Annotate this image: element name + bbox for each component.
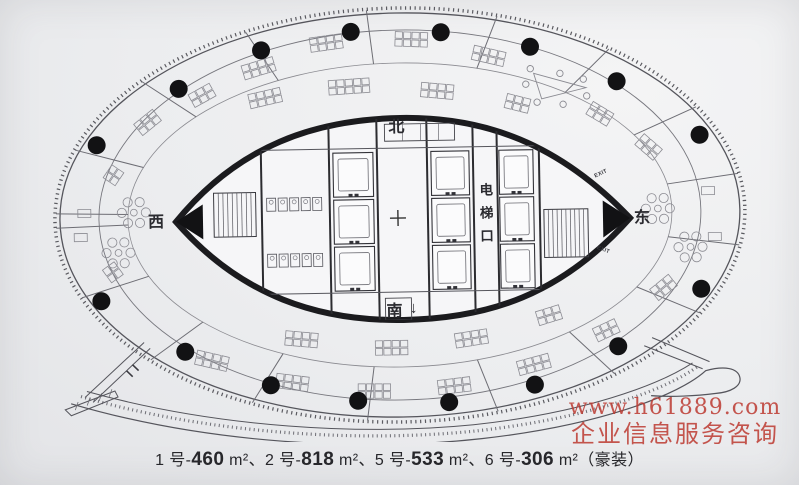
elevator-entrance-label: 电梯口: [479, 181, 494, 243]
column-dot: [440, 393, 458, 411]
caption-text: m²、5 号-: [334, 452, 411, 469]
column-dot: [252, 41, 270, 59]
column-dot: [170, 80, 188, 98]
caption-text: m²、2 号-: [224, 452, 301, 469]
caption-area-value: 533: [411, 449, 444, 470]
column-dot: [526, 376, 544, 394]
floorplan-drawing: EXIT EXIT 北 南 ↓ 西 东 电梯口: [0, 0, 799, 442]
column-dot: [692, 280, 710, 298]
west-label: 西: [148, 213, 164, 231]
svg-text:电: 电: [479, 181, 493, 197]
svg-text:梯: 梯: [480, 204, 494, 220]
column-dot: [262, 376, 280, 394]
column-dot: [349, 392, 367, 410]
caption-text: m²（豪装）: [554, 452, 644, 469]
column-dot: [609, 337, 627, 355]
caption-area-value: 306: [521, 449, 554, 470]
column-dot: [342, 23, 360, 41]
scanned-floorplan-page: EXIT EXIT 北 南 ↓ 西 东 电梯口 www.h61889.com 企…: [0, 0, 799, 485]
north-label: 北: [388, 118, 404, 136]
caption-text: 1 号-: [155, 452, 191, 469]
column-dot: [607, 72, 625, 90]
east-label: 东: [634, 208, 650, 227]
south-arrow-icon: ↓: [409, 300, 417, 317]
floorplan-svg: EXIT EXIT 北 南 ↓ 西 东 电梯口: [0, 0, 799, 442]
area-caption: 1 号-460 m²、2 号-818 m²、5 号-533 m²、6 号-306…: [0, 446, 799, 471]
exit-label-upper: EXIT: [594, 168, 609, 179]
column-dot: [87, 136, 105, 154]
svg-text:口: 口: [480, 228, 494, 243]
column-dot: [521, 38, 539, 56]
column-dot: [690, 126, 708, 144]
exit-label-lower: EXIT: [596, 245, 611, 256]
column-dot: [176, 343, 194, 361]
caption-text: m²、6 号-: [444, 452, 521, 469]
caption-area-value: 460: [191, 449, 224, 470]
caption-area-value: 818: [301, 449, 334, 470]
column-dot: [432, 23, 450, 41]
central-core: EXIT EXIT: [174, 114, 631, 326]
south-label: 南: [386, 301, 402, 320]
